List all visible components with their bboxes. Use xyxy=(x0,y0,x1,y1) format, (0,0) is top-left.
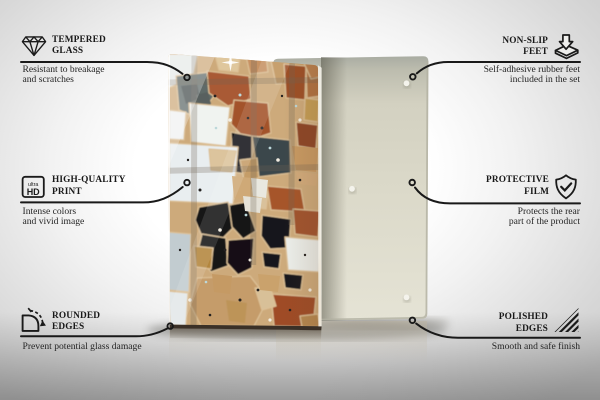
svg-text:HD: HD xyxy=(27,187,40,197)
